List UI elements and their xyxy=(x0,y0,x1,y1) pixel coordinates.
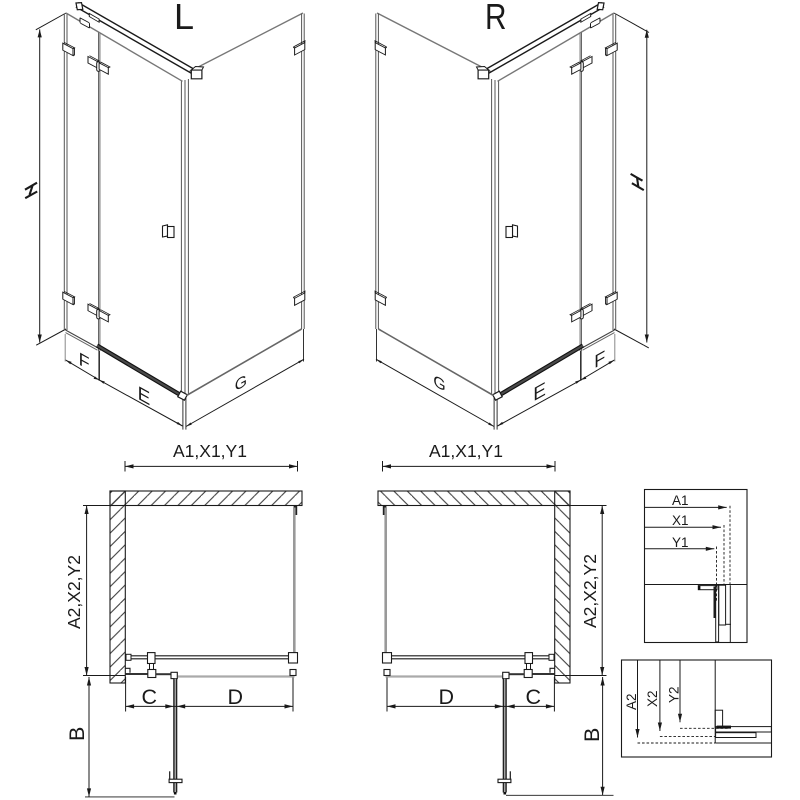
svg-text:B: B xyxy=(65,727,89,741)
svg-text:A1,X1,Y1: A1,X1,Y1 xyxy=(429,441,503,461)
svg-text:D: D xyxy=(228,685,244,709)
svg-text:C: C xyxy=(142,685,158,709)
svg-text:A1: A1 xyxy=(672,493,689,508)
svg-text:D: D xyxy=(439,685,455,709)
svg-text:Y1: Y1 xyxy=(672,535,689,550)
svg-text:X1: X1 xyxy=(672,513,689,528)
svg-text:C: C xyxy=(526,685,542,709)
svg-text:A2,X2,Y2: A2,X2,Y2 xyxy=(580,554,600,628)
svg-text:R: R xyxy=(485,0,507,37)
svg-text:A1,X1,Y1: A1,X1,Y1 xyxy=(173,441,247,461)
svg-text:A2: A2 xyxy=(624,693,639,710)
svg-text:A2,X2,Y2: A2,X2,Y2 xyxy=(64,555,84,629)
svg-text:X2: X2 xyxy=(645,690,660,707)
svg-text:L: L xyxy=(174,0,194,37)
svg-text:Y2: Y2 xyxy=(667,686,682,703)
svg-text:B: B xyxy=(580,728,604,742)
